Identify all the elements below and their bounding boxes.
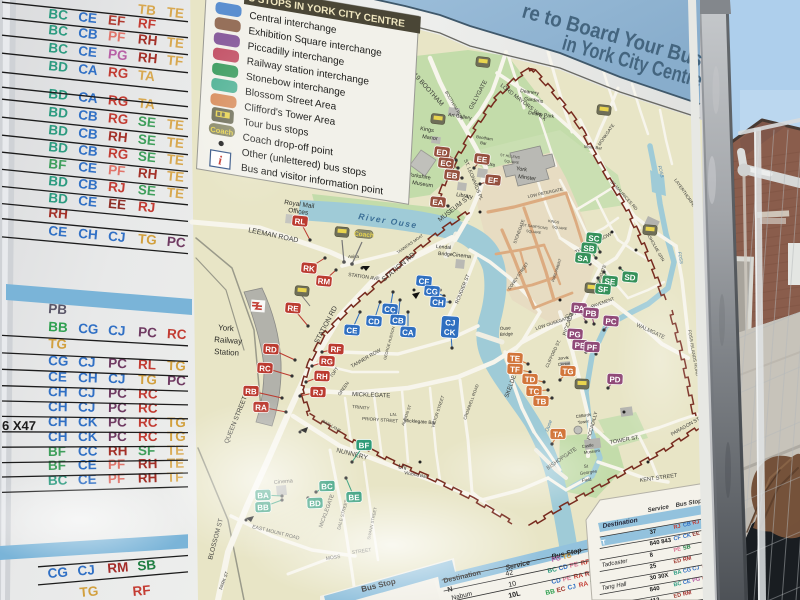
svg-text:EA: EA	[432, 198, 444, 208]
svg-text:CE: CE	[48, 223, 68, 240]
svg-text:BF: BF	[48, 458, 66, 473]
svg-text:SD: SD	[624, 273, 636, 283]
svg-text:CJ: CJ	[78, 385, 96, 400]
svg-text:PC: PC	[166, 234, 186, 251]
svg-text:CD: CD	[368, 317, 380, 327]
svg-text:RH: RH	[48, 205, 69, 222]
svg-text:SA: SA	[577, 254, 589, 264]
svg-text:CK: CK	[444, 328, 456, 338]
svg-text:RG: RG	[107, 110, 129, 127]
svg-text:RG: RG	[321, 357, 333, 367]
svg-text:CB: CB	[78, 107, 99, 124]
svg-text:CB: CB	[392, 316, 404, 326]
svg-text:CE: CE	[78, 457, 97, 472]
svg-text:CC: CC	[384, 305, 396, 315]
svg-text:LN.: LN.	[390, 412, 397, 417]
svg-text:CB: CB	[78, 125, 99, 142]
svg-text:PF: PF	[587, 343, 598, 353]
svg-text:TB: TB	[536, 397, 547, 406]
svg-text:SE: SE	[137, 131, 156, 148]
svg-text:Bridge: Bridge	[438, 251, 453, 258]
svg-text:CK: CK	[78, 429, 98, 444]
svg-text:PC: PC	[605, 317, 617, 327]
svg-text:CJ: CJ	[108, 323, 126, 339]
svg-text:TF: TF	[166, 52, 184, 69]
svg-text:CH: CH	[48, 429, 68, 444]
svg-text:TG: TG	[562, 367, 573, 376]
svg-text:RM: RM	[317, 277, 330, 287]
svg-text:BD: BD	[48, 104, 69, 121]
svg-text:CA: CA	[402, 328, 414, 338]
svg-text:RE: RE	[287, 304, 299, 314]
svg-text:BC: BC	[48, 40, 69, 57]
svg-text:CK: CK	[78, 414, 98, 429]
svg-text:Lendal: Lendal	[436, 244, 451, 251]
svg-text:CJ: CJ	[107, 228, 126, 245]
svg-text:RC: RC	[138, 400, 158, 415]
svg-text:CE: CE	[346, 326, 358, 336]
svg-text:RC: RC	[138, 429, 158, 444]
svg-text:CH: CH	[48, 384, 68, 399]
svg-text:RF: RF	[330, 345, 341, 355]
svg-text:ED: ED	[436, 148, 448, 158]
svg-text:CG: CG	[78, 321, 99, 337]
svg-text:EF: EF	[487, 176, 498, 186]
svg-text:PF: PF	[108, 457, 126, 472]
svg-text:SE: SE	[137, 113, 156, 130]
svg-text:RD: RD	[265, 345, 277, 355]
svg-text:Ouse: Ouse	[500, 325, 512, 331]
svg-text:PC: PC	[138, 324, 158, 340]
svg-text:RH: RH	[137, 49, 158, 66]
svg-text:CE: CE	[78, 43, 98, 60]
svg-text:RH: RH	[316, 372, 328, 381]
svg-text:BF: BF	[48, 444, 66, 459]
svg-text:PC: PC	[108, 385, 127, 400]
svg-text:CH: CH	[48, 414, 68, 429]
svg-text:Station: Station	[214, 347, 239, 358]
svg-text:RK: RK	[303, 264, 316, 274]
svg-text:PC: PC	[108, 400, 127, 415]
svg-text:CJ: CJ	[78, 399, 96, 414]
svg-text:PB: PB	[585, 309, 597, 319]
svg-text:BD: BD	[48, 86, 69, 103]
svg-text:RB: RB	[245, 387, 257, 396]
svg-text:6 X47: 6 X47	[2, 418, 36, 433]
svg-text:RH: RH	[138, 456, 158, 471]
svg-text:TA: TA	[137, 67, 156, 84]
svg-text:PC: PC	[108, 429, 127, 444]
svg-text:TE: TE	[166, 4, 185, 21]
svg-text:TF: TF	[510, 365, 520, 374]
svg-text:Bridge: Bridge	[500, 331, 514, 337]
svg-text:PG: PG	[569, 330, 581, 340]
svg-text:BD: BD	[48, 122, 69, 139]
svg-text:EC: EC	[440, 159, 452, 169]
svg-text:PB: PB	[48, 301, 68, 317]
svg-text:CH: CH	[78, 226, 99, 243]
svg-text:EB: EB	[446, 171, 458, 181]
svg-text:TC: TC	[529, 387, 540, 396]
svg-text:SB: SB	[583, 244, 595, 254]
svg-text:TE: TE	[510, 354, 521, 363]
svg-text:RF: RF	[132, 582, 151, 599]
svg-text:PG: PG	[107, 46, 128, 63]
svg-text:RJ: RJ	[313, 388, 323, 397]
svg-text:RC: RC	[138, 386, 158, 401]
svg-text:RG: RG	[107, 92, 129, 109]
svg-text:BF: BF	[359, 441, 370, 450]
svg-text:TG: TG	[137, 231, 157, 248]
svg-text:CA: CA	[78, 61, 99, 78]
svg-text:EE: EE	[476, 155, 488, 165]
svg-text:TG: TG	[79, 583, 99, 600]
svg-text:Aviva: Aviva	[348, 254, 359, 259]
svg-text:BD: BD	[48, 58, 69, 75]
svg-text:RL: RL	[294, 217, 306, 227]
svg-text:CG: CG	[426, 287, 439, 297]
svg-text:PC: PC	[108, 414, 127, 429]
svg-text:RC: RC	[259, 364, 271, 373]
svg-text:TE: TE	[166, 134, 185, 151]
svg-text:York: York	[218, 323, 235, 333]
svg-text:SF: SF	[597, 285, 608, 295]
svg-text:CJ: CJ	[445, 318, 456, 328]
svg-text:RC: RC	[167, 326, 188, 342]
svg-text:RH: RH	[107, 128, 128, 145]
svg-text:TA: TA	[137, 95, 156, 112]
svg-text:CH: CH	[48, 399, 68, 414]
svg-text:CA: CA	[78, 89, 99, 106]
svg-text:CH: CH	[432, 298, 444, 308]
svg-text:TE: TE	[166, 116, 185, 133]
svg-text:RG: RG	[107, 64, 129, 81]
svg-text:BB: BB	[48, 319, 69, 335]
svg-text:TD: TD	[524, 375, 535, 384]
svg-text:RC: RC	[138, 415, 158, 430]
